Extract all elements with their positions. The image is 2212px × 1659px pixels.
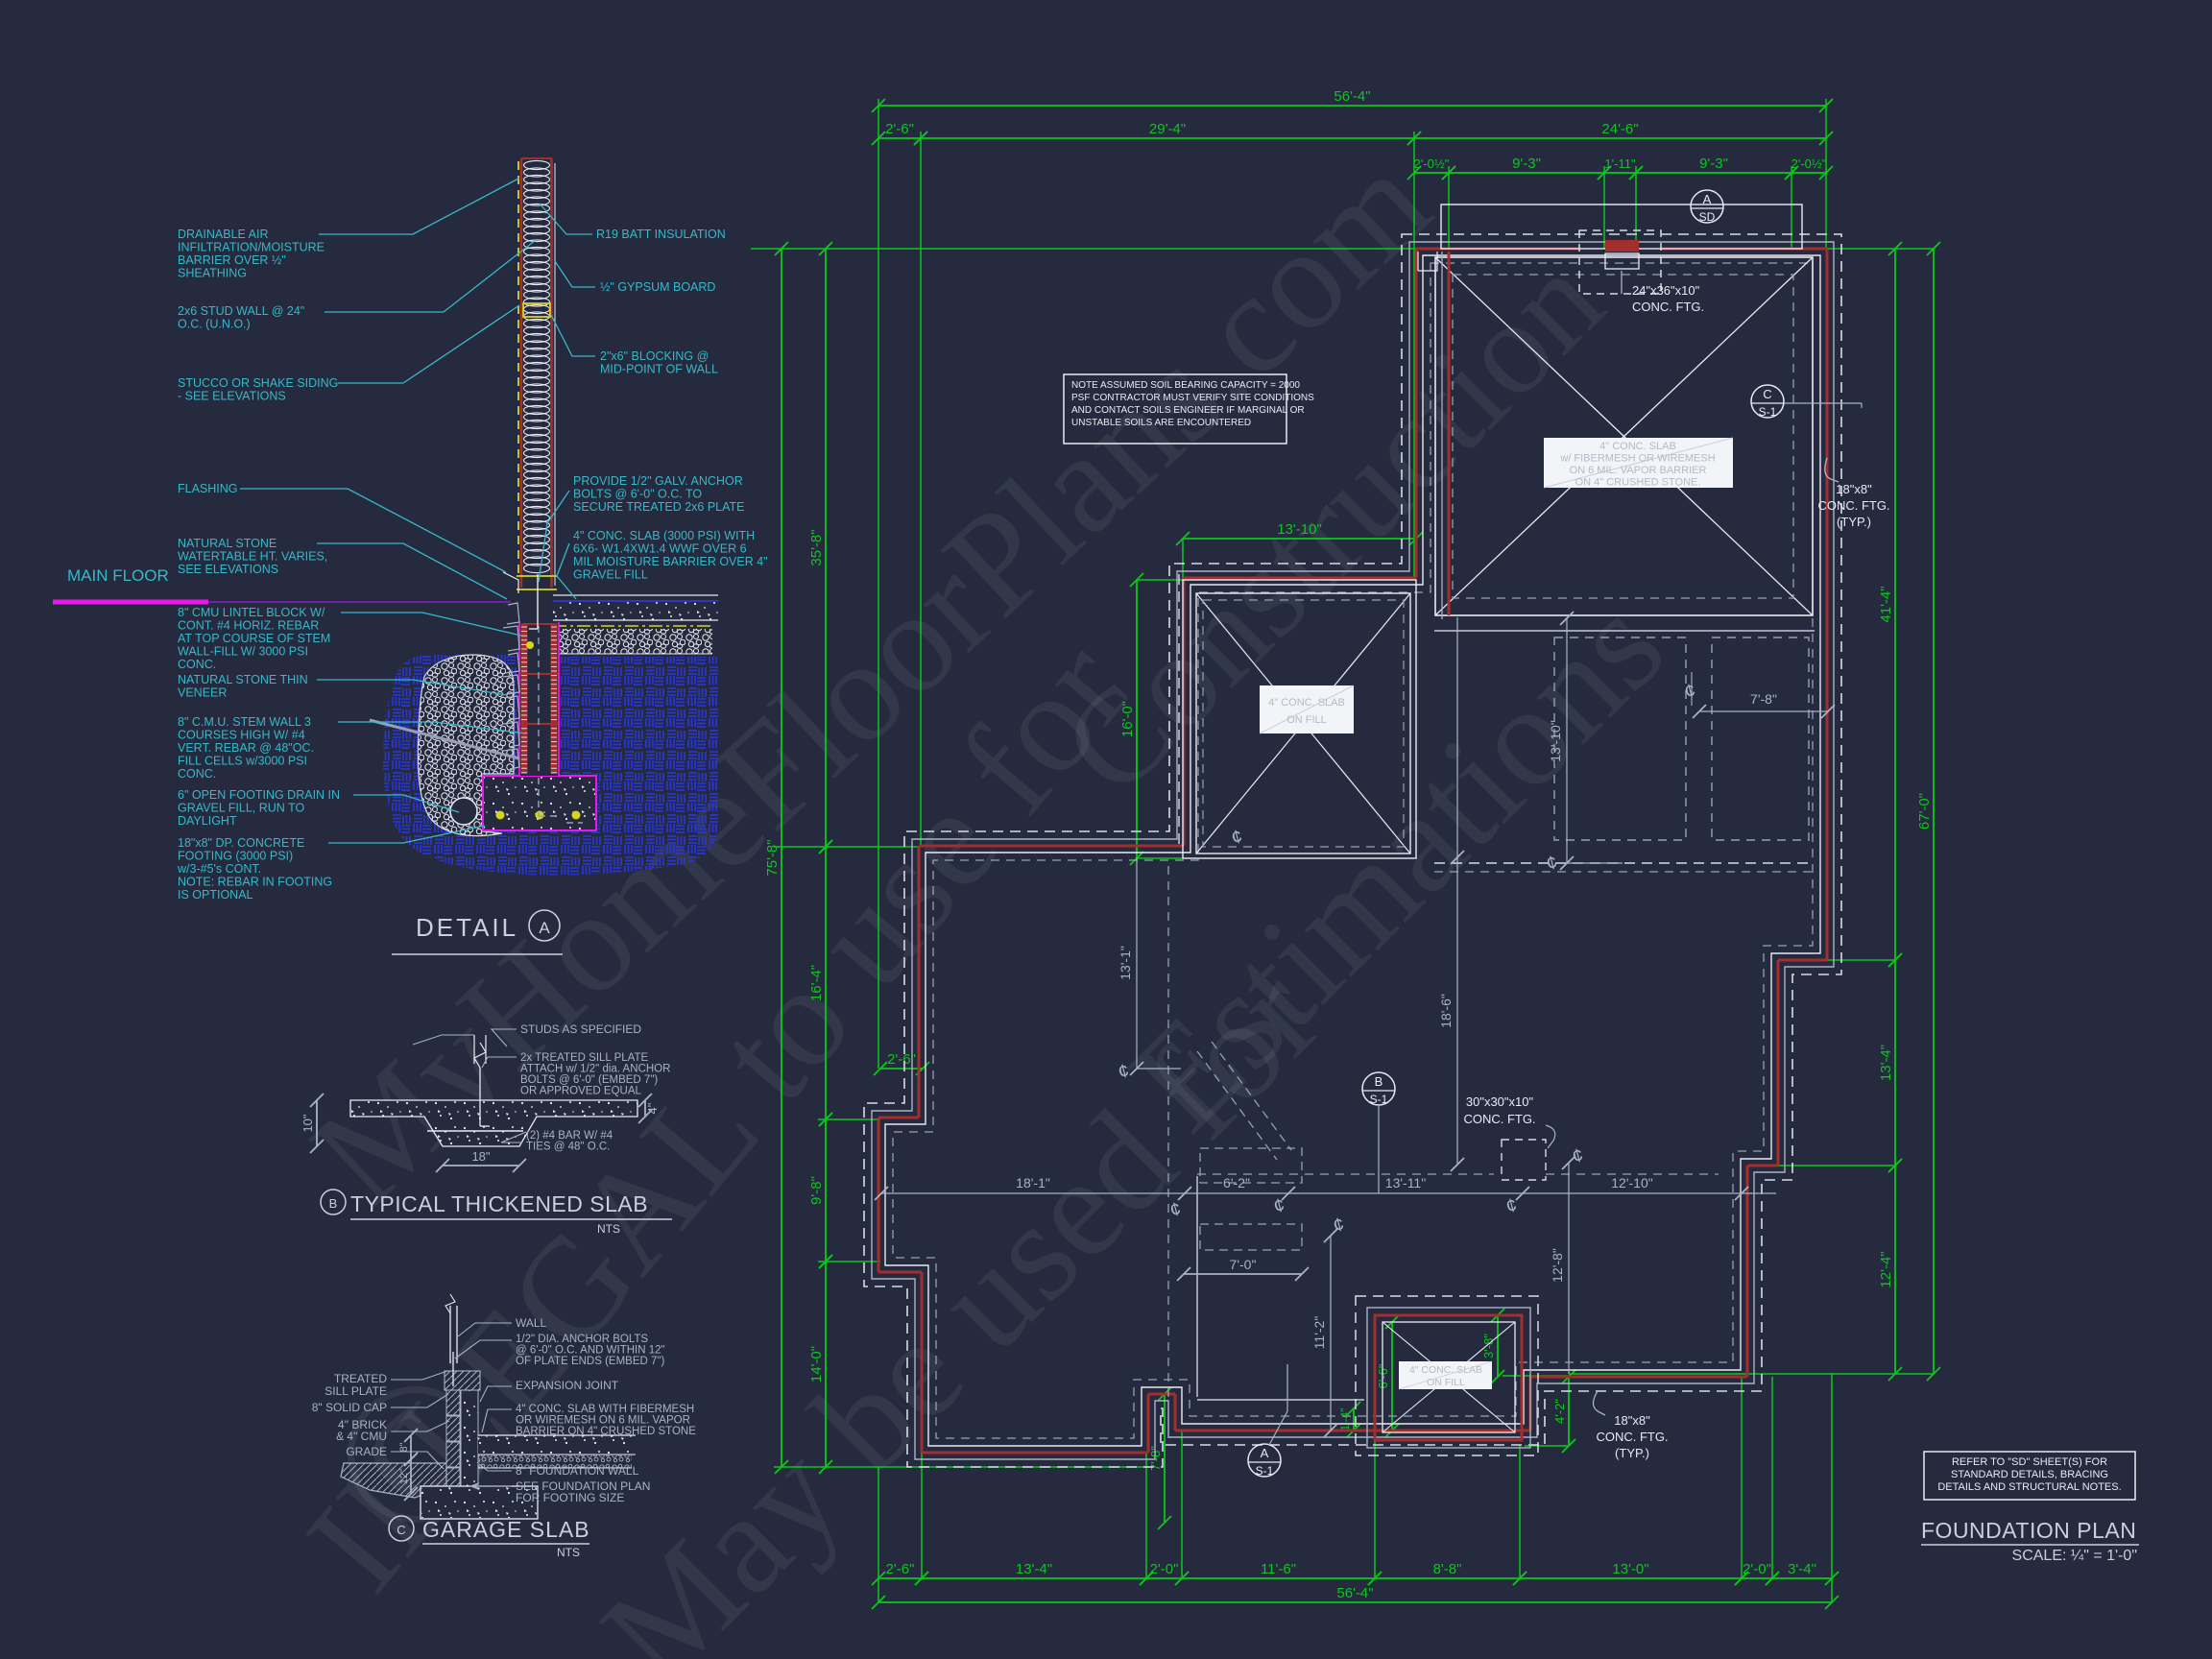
svg-text:7'-8": 7'-8" <box>1750 691 1777 707</box>
svg-text:GRADE: GRADE <box>346 1445 387 1458</box>
svg-text:1'-11": 1'-11" <box>1604 156 1636 171</box>
svg-text:16'-0": 16'-0" <box>1119 701 1136 737</box>
svg-text:FOUNDATION PLAN: FOUNDATION PLAN <box>1921 1518 2136 1543</box>
svg-text:13'-10": 13'-10" <box>1277 521 1322 538</box>
svg-text:B: B <box>1375 1074 1383 1089</box>
svg-text:2x6 STUD WALL @ 24": 2x6 STUD WALL @ 24" <box>178 304 304 318</box>
svg-text:BOLTS @ 6'-0" (EMBED 7"): BOLTS @ 6'-0" (EMBED 7") <box>520 1074 658 1086</box>
svg-text:MID-POINT OF WALL: MID-POINT OF WALL <box>600 363 718 376</box>
svg-text:13'-1": 13'-1" <box>1118 946 1133 980</box>
svg-text:8" CMU LINTEL BLOCK W/: 8" CMU LINTEL BLOCK W/ <box>178 606 325 619</box>
svg-text:8" C.M.U. STEM WALL 3: 8" C.M.U. STEM WALL 3 <box>178 715 311 729</box>
svg-text:3'-8": 3'-8" <box>1481 1334 1496 1358</box>
svg-text:SEE ELEVATIONS: SEE ELEVATIONS <box>178 563 278 576</box>
svg-text:CONC. FTG.: CONC. FTG. <box>1632 300 1704 314</box>
svg-text:ON FILL: ON FILL <box>1286 714 1327 726</box>
svg-text:56'-4": 56'-4" <box>1336 1585 1373 1601</box>
svg-text:10": 10" <box>301 1114 315 1132</box>
svg-text:6X6- W1.4XW1.4 WWF OVER 6: 6X6- W1.4XW1.4 WWF OVER 6 <box>573 542 747 556</box>
svg-text:CONC. FTG.: CONC. FTG. <box>1463 1112 1535 1126</box>
svg-text:4" CONC. SLAB: 4" CONC. SLAB <box>1268 697 1345 709</box>
svg-text:C: C <box>397 1523 405 1537</box>
svg-text:56'-4": 56'-4" <box>1334 88 1370 105</box>
svg-text:(TYP.): (TYP.) <box>1615 1446 1649 1460</box>
svg-text:COURSES HIGH W/ #4: COURSES HIGH W/ #4 <box>178 729 305 742</box>
svg-text:w/ FIBERMESH OR WIREMESH: w/ FIBERMESH OR WIREMESH <box>1559 453 1715 465</box>
svg-text:18'-1": 18'-1" <box>1016 1175 1050 1190</box>
svg-text:75'-8": 75'-8" <box>764 839 781 876</box>
svg-text:41'-4": 41'-4" <box>1878 586 1894 622</box>
svg-text:2'-0½": 2'-0½" <box>1791 156 1827 171</box>
svg-text:1'-4": 1'-4" <box>1338 1408 1352 1431</box>
svg-text:30"x30"x10": 30"x30"x10" <box>1466 1094 1534 1109</box>
svg-text:2"x6" BLOCKING @: 2"x6" BLOCKING @ <box>600 349 709 363</box>
svg-text:WALL: WALL <box>516 1316 547 1330</box>
svg-text:REFER TO "SD" SHEET(S) FOR: REFER TO "SD" SHEET(S) FOR <box>1952 1456 2107 1468</box>
svg-text:BARRIER ON 4" CRUSHED STONE: BARRIER ON 4" CRUSHED STONE <box>516 1426 696 1437</box>
svg-text:MAIN FLOOR: MAIN FLOOR <box>67 566 169 585</box>
svg-text:13'-11": 13'-11" <box>1385 1175 1426 1190</box>
svg-text:CONC. FTG.: CONC. FTG. <box>1596 1430 1668 1444</box>
svg-text:9'-3": 9'-3" <box>1699 156 1728 172</box>
svg-text:PSF CONTRACTOR MUST VERIFY SIT: PSF CONTRACTOR MUST VERIFY SITE CONDITIO… <box>1071 393 1314 403</box>
svg-text:OF PLATE ENDS (EMBED 7"): OF PLATE ENDS (EMBED 7") <box>516 1356 664 1367</box>
svg-text:OR APPROVED EQUAL: OR APPROVED EQUAL <box>520 1086 642 1097</box>
svg-text:S-1: S-1 <box>1256 1464 1274 1478</box>
svg-text:67'-0": 67'-0" <box>1916 793 1933 829</box>
svg-text:STUDS AS SPECIFIED: STUDS AS SPECIFIED <box>520 1022 641 1036</box>
svg-text:24'-6": 24'-6" <box>1601 121 1638 137</box>
svg-text:@ 6'-0" O.C. AND WITHIN 12": @ 6'-0" O.C. AND WITHIN 12" <box>516 1345 665 1357</box>
svg-text:SILL PLATE: SILL PLATE <box>325 1384 387 1398</box>
svg-text:A: A <box>539 919 550 937</box>
svg-text:GARAGE SLAB: GARAGE SLAB <box>422 1517 590 1542</box>
svg-text:ATTACH w/ 1/2" dia. ANCHOR: ATTACH w/ 1/2" dia. ANCHOR <box>520 1064 670 1075</box>
svg-text:6'-2": 6'-2" <box>1223 1175 1250 1190</box>
svg-text:2'-6": 2'-6" <box>886 1561 915 1577</box>
svg-text:ON 6 MIL. VAPOR BARRIER: ON 6 MIL. VAPOR BARRIER <box>1570 465 1707 476</box>
svg-text:INFILTRATION/MOISTURE: INFILTRATION/MOISTURE <box>178 241 325 254</box>
svg-text:8" SOLID CAP: 8" SOLID CAP <box>312 1401 387 1414</box>
svg-text:18"x8" DP. CONCRETE: 18"x8" DP. CONCRETE <box>178 836 304 850</box>
svg-text:FOR FOOTING SIZE: FOR FOOTING SIZE <box>516 1491 624 1504</box>
svg-text:CONT. #4 HORIZ. REBAR: CONT. #4 HORIZ. REBAR <box>178 619 319 633</box>
svg-text:DAYLIGHT: DAYLIGHT <box>178 814 237 828</box>
svg-text:C: C <box>1763 387 1771 401</box>
svg-text:13'-4": 13'-4" <box>1878 1045 1894 1081</box>
svg-text:12": 12" <box>398 1469 410 1484</box>
svg-text:3'-4": 3'-4" <box>1788 1561 1816 1577</box>
svg-text:11'-6": 11'-6" <box>1261 1561 1296 1577</box>
svg-text:S-1: S-1 <box>1759 405 1777 419</box>
svg-text:TYPICAL THICKENED SLAB: TYPICAL THICKENED SLAB <box>350 1191 648 1216</box>
svg-text:STANDARD DETAILS, BRACING: STANDARD DETAILS, BRACING <box>1951 1469 2108 1480</box>
svg-text:2'-0½": 2'-0½" <box>1414 156 1450 171</box>
svg-text:IS OPTIONAL: IS OPTIONAL <box>178 888 253 902</box>
svg-text:DRAINABLE AIR: DRAINABLE AIR <box>178 228 268 241</box>
svg-text:A: A <box>1703 192 1712 206</box>
svg-text:BARRIER OVER ½": BARRIER OVER ½" <box>178 253 286 267</box>
svg-text:UNSTABLE SOILS ARE ENCOUNTERED: UNSTABLE SOILS ARE ENCOUNTERED <box>1071 418 1251 428</box>
svg-text:AT TOP COURSE OF STEM: AT TOP COURSE OF STEM <box>178 632 330 645</box>
svg-text:SCALE: ¼" = 1'-0": SCALE: ¼" = 1'-0" <box>2012 1548 2137 1564</box>
svg-text:8": 8" <box>398 1442 410 1452</box>
svg-text:NOTE ASSUMED SOIL BEARING CAPA: NOTE ASSUMED SOIL BEARING CAPACITY = 200… <box>1071 380 1300 391</box>
svg-text:8'-8": 8'-8" <box>1433 1561 1462 1577</box>
svg-text:MIL MOISTURE BARRIER OVER 4": MIL MOISTURE BARRIER OVER 4" <box>573 555 768 568</box>
svg-text:A: A <box>1261 1446 1269 1460</box>
svg-text:SHEATHING: SHEATHING <box>178 267 247 280</box>
svg-text:18'-6": 18'-6" <box>1438 994 1454 1028</box>
svg-text:½" GYPSUM BOARD: ½" GYPSUM BOARD <box>600 280 715 294</box>
svg-text:NTS: NTS <box>597 1222 620 1236</box>
svg-text:NATURAL STONE: NATURAL STONE <box>178 537 276 550</box>
svg-text:ON 4" CRUSHED STONE.: ON 4" CRUSHED STONE. <box>1575 477 1701 489</box>
svg-text:12'-8": 12'-8" <box>1550 1248 1565 1283</box>
svg-text:CONC.: CONC. <box>178 767 216 781</box>
svg-text:GRAVEL FILL, RUN TO: GRAVEL FILL, RUN TO <box>178 802 304 815</box>
svg-text:FLASHING: FLASHING <box>178 482 238 495</box>
svg-text:CONC. FTG.: CONC. FTG. <box>1817 498 1889 513</box>
svg-text:FOOTING (3000 PSI): FOOTING (3000 PSI) <box>178 850 293 863</box>
svg-text:SECURE TREATED 2x6 PLATE: SECURE TREATED 2x6 PLATE <box>573 500 745 514</box>
svg-text:4" CONC. SLAB WITH FIBERMESH: 4" CONC. SLAB WITH FIBERMESH <box>516 1404 694 1415</box>
svg-text:2x TREATED SILL PLATE: 2x TREATED SILL PLATE <box>520 1052 648 1064</box>
svg-text:R19 BATT INSULATION: R19 BATT INSULATION <box>596 228 726 241</box>
svg-text:OR WIREMESH ON 6 MIL. VAPOR: OR WIREMESH ON 6 MIL. VAPOR <box>516 1415 690 1427</box>
svg-text:TREATED: TREATED <box>334 1372 387 1385</box>
svg-text:9'-3": 9'-3" <box>1512 156 1541 172</box>
svg-text:4": 4" <box>645 1102 660 1114</box>
svg-text:B: B <box>329 1196 338 1211</box>
svg-text:AND CONTACT SOILS ENGINEER IF: AND CONTACT SOILS ENGINEER IF MARGINAL O… <box>1071 405 1305 416</box>
svg-text:11'-2": 11'-2" <box>1311 1316 1327 1350</box>
svg-text:13'-4": 13'-4" <box>1016 1561 1052 1577</box>
svg-text:6" OPEN FOOTING DRAIN IN: 6" OPEN FOOTING DRAIN IN <box>178 788 340 802</box>
svg-text:8" FOUNDATION WALL: 8" FOUNDATION WALL <box>516 1464 639 1478</box>
svg-text:1/2" DIA. ANCHOR BOLTS: 1/2" DIA. ANCHOR BOLTS <box>516 1334 648 1345</box>
svg-text:VERT. REBAR @ 48"OC.: VERT. REBAR @ 48"OC. <box>178 741 314 755</box>
svg-text:(TYP.): (TYP.) <box>1837 515 1871 529</box>
svg-text:14'-0": 14'-0" <box>808 1346 825 1382</box>
svg-text:4" CONC. SLAB (3000 PSI) WITH: 4" CONC. SLAB (3000 PSI) WITH <box>573 529 755 542</box>
svg-text:4" CONC. SLAB: 4" CONC. SLAB <box>1409 1364 1482 1376</box>
svg-text:NTS: NTS <box>557 1546 580 1559</box>
svg-text:DETAILS AND STRUCTURAL NOTES.: DETAILS AND STRUCTURAL NOTES. <box>1937 1481 2121 1493</box>
svg-text:TIES @ 48" O.C.: TIES @ 48" O.C. <box>526 1142 610 1153</box>
svg-text:SD: SD <box>1699 210 1716 224</box>
svg-text:12'-10": 12'-10" <box>1611 1175 1652 1190</box>
svg-text:(2) #4 BAR W/ #4: (2) #4 BAR W/ #4 <box>526 1130 613 1142</box>
svg-text:EXPANSION JOINT: EXPANSION JOINT <box>516 1379 619 1392</box>
svg-text:NATURAL STONE THIN: NATURAL STONE THIN <box>178 673 308 686</box>
svg-text:18": 18" <box>471 1149 490 1164</box>
svg-text:18"x8": 18"x8" <box>1836 482 1872 496</box>
svg-text:9'-8": 9'-8" <box>808 1176 825 1205</box>
svg-text:STUCCO OR SHAKE SIDING: STUCCO OR SHAKE SIDING <box>178 376 338 390</box>
svg-text:2'-0": 2'-0" <box>1743 1561 1771 1577</box>
svg-text:CONC.: CONC. <box>178 658 216 671</box>
svg-text:7'-0": 7'-0" <box>1230 1257 1257 1272</box>
svg-text:2'-0": 2'-0" <box>1150 1561 1179 1577</box>
svg-text:WATERTABLE HT. VARIES,: WATERTABLE HT. VARIES, <box>178 550 327 564</box>
svg-text:13'-0": 13'-0" <box>1612 1561 1648 1577</box>
svg-text:4" CONC. SLAB: 4" CONC. SLAB <box>1599 441 1676 452</box>
svg-text:2'-6": 2'-6" <box>885 121 914 137</box>
svg-text:18"x8": 18"x8" <box>1614 1413 1650 1428</box>
svg-text:- SEE ELEVATIONS: - SEE ELEVATIONS <box>178 390 286 403</box>
svg-text:FILL CELLS w/3000 PSI: FILL CELLS w/3000 PSI <box>178 755 307 768</box>
svg-text:BOLTS @ 6'-0" O.C. TO: BOLTS @ 6'-0" O.C. TO <box>573 488 702 501</box>
svg-text:O.C. (U.N.O.): O.C. (U.N.O.) <box>178 318 251 331</box>
svg-text:ON FILL: ON FILL <box>1427 1377 1465 1388</box>
svg-text:13'-10": 13'-10" <box>1548 720 1563 761</box>
svg-text:12'-4": 12'-4" <box>1878 1251 1894 1287</box>
svg-text:PROVIDE 1/2" GALV. ANCHOR: PROVIDE 1/2" GALV. ANCHOR <box>573 474 743 488</box>
svg-text:16'-4": 16'-4" <box>808 965 825 1001</box>
svg-text:w/3-#5's CONT.: w/3-#5's CONT. <box>177 862 261 876</box>
svg-text:NOTE: REBAR IN FOOTING: NOTE: REBAR IN FOOTING <box>178 876 332 889</box>
svg-text:VENEER: VENEER <box>178 686 227 700</box>
svg-text:24"x36"x10": 24"x36"x10" <box>1632 283 1700 298</box>
svg-text:S-1: S-1 <box>1370 1093 1388 1106</box>
svg-text:DETAIL: DETAIL <box>416 913 518 942</box>
svg-text:WALL-FILL W/ 3000 PSI: WALL-FILL W/ 3000 PSI <box>178 645 308 659</box>
svg-text:35'-8": 35'-8" <box>808 529 825 565</box>
svg-text:29'-4": 29'-4" <box>1149 121 1186 137</box>
svg-text:& 4" CMU: & 4" CMU <box>336 1430 387 1443</box>
svg-text:4'-2": 4'-2" <box>1552 1399 1567 1424</box>
svg-text:GRAVEL FILL: GRAVEL FILL <box>573 568 648 582</box>
